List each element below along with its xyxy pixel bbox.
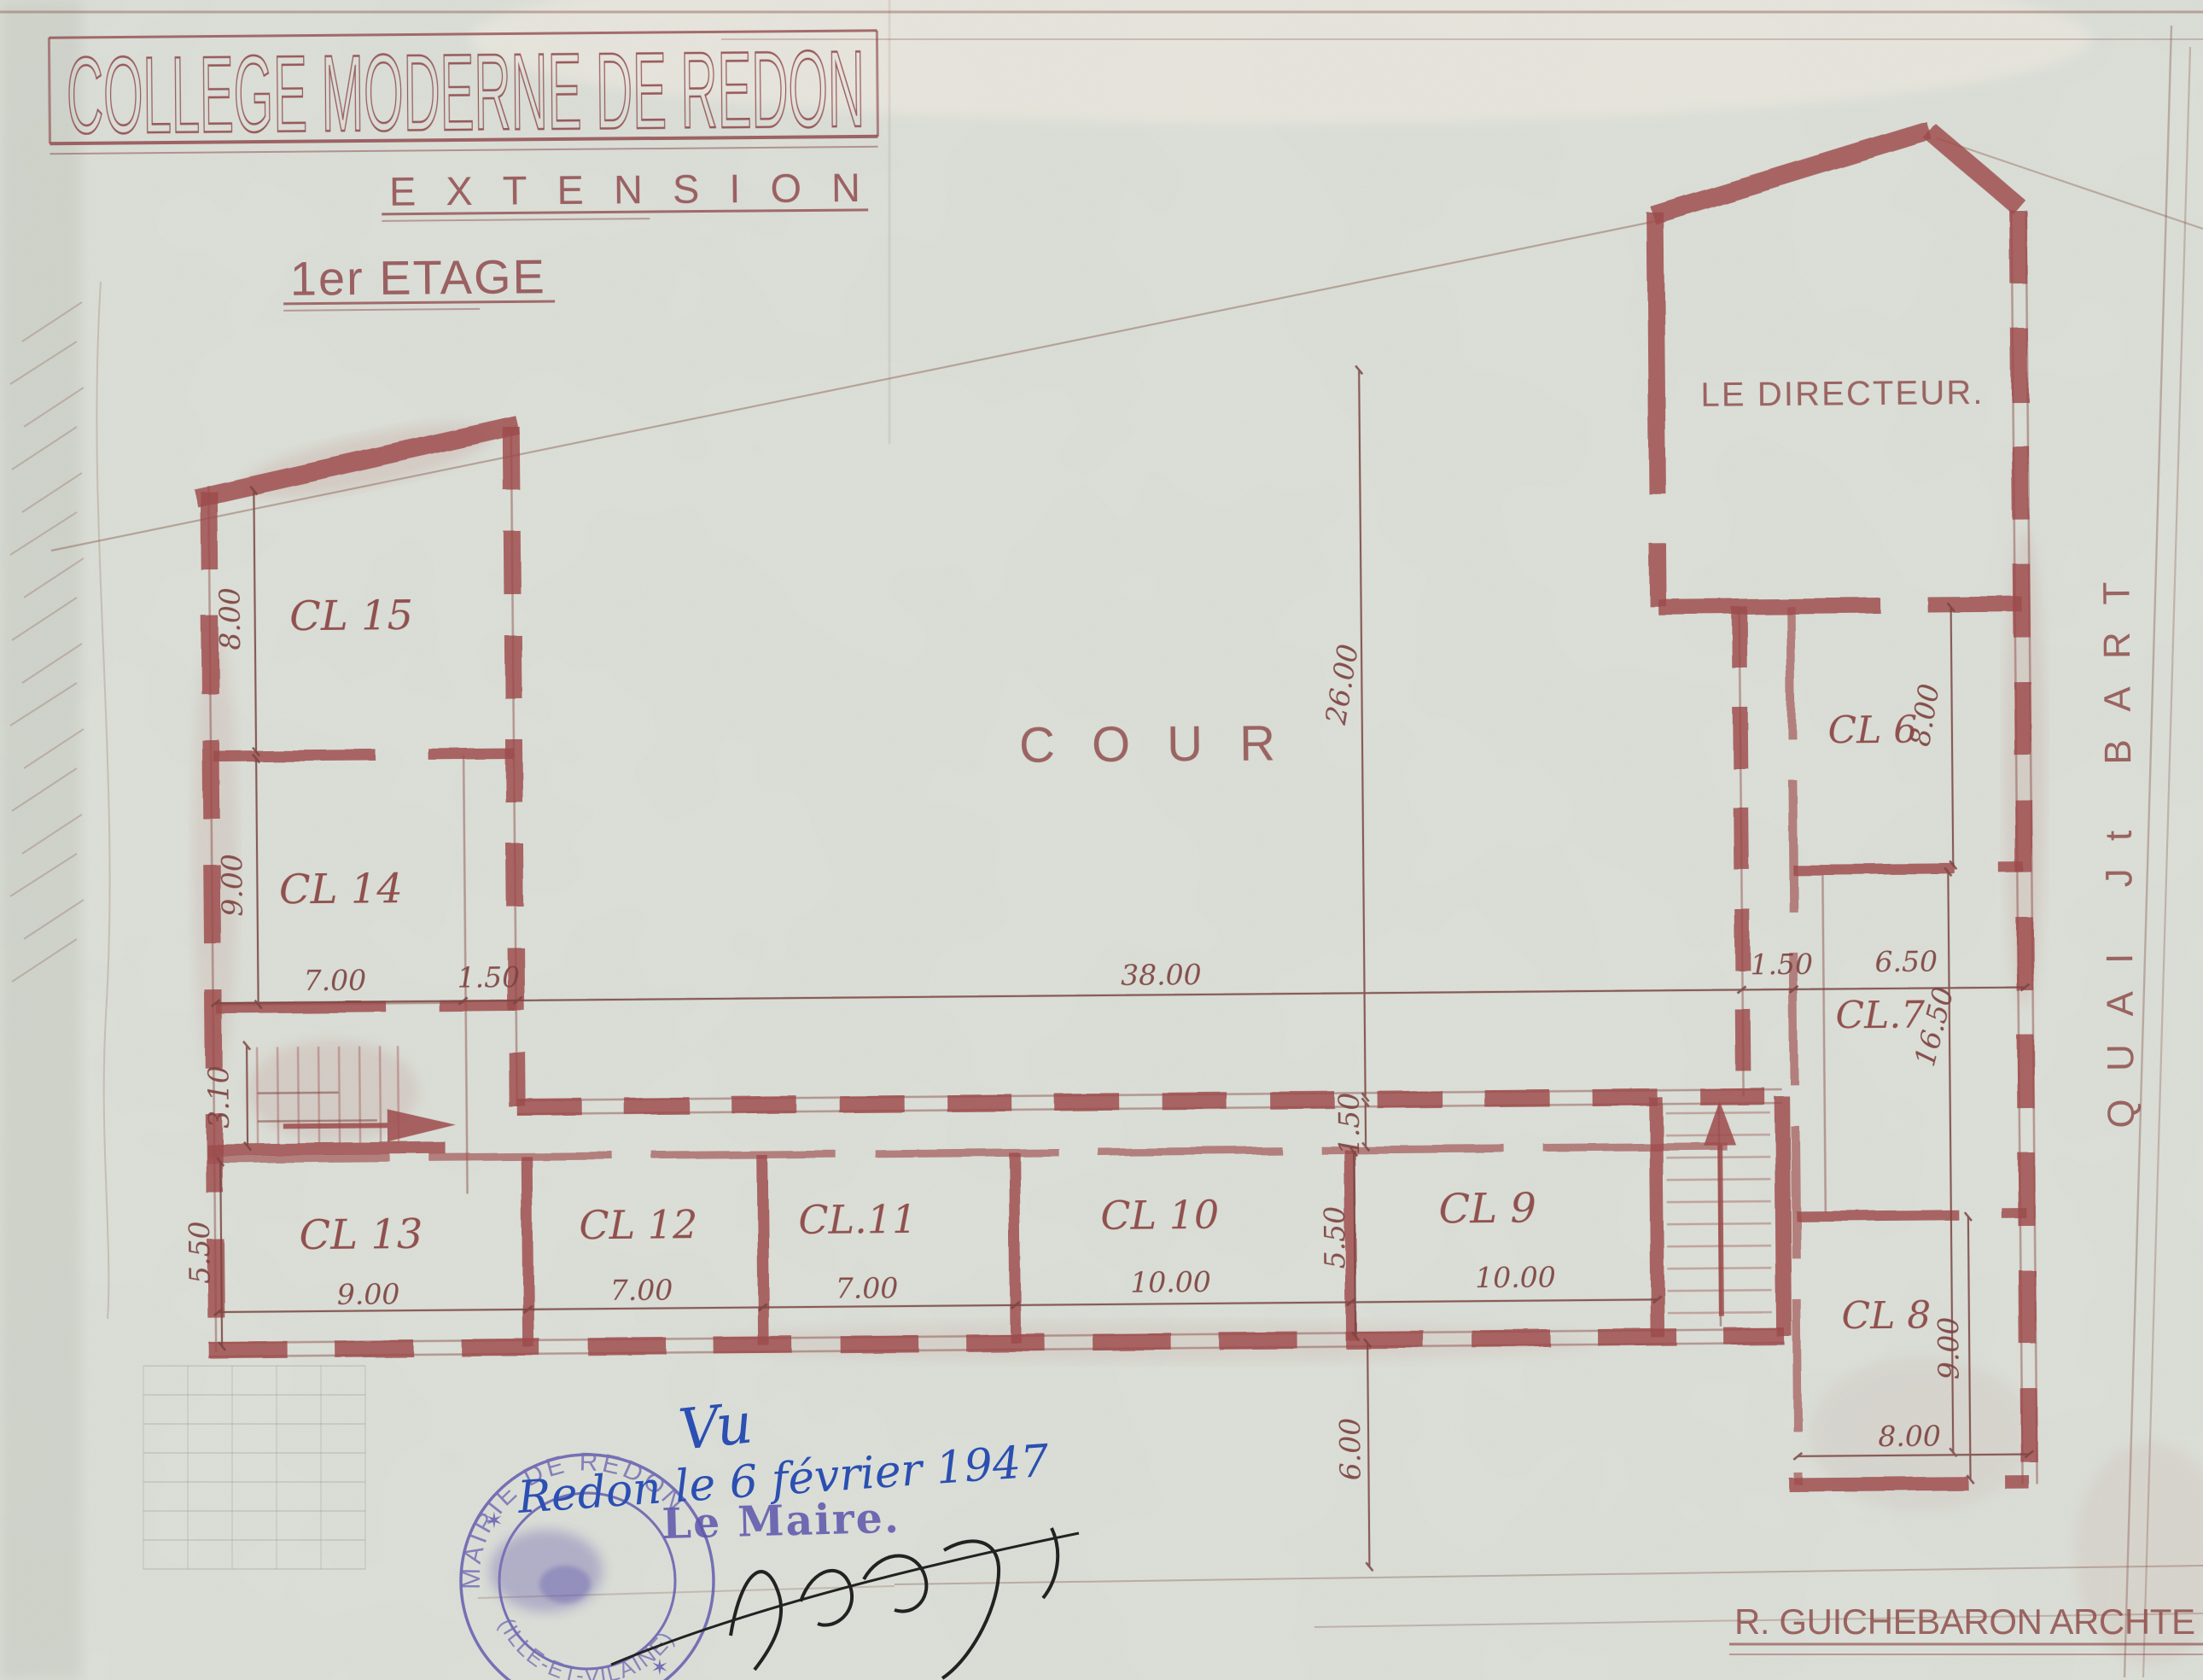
dim-cl13-depth: 5.50 [183,1221,217,1284]
sheet-title: COLLEGE MODERNE DE REDON [66,29,865,158]
dim-cl10-width: 10.00 [1130,1265,1211,1299]
dim-stairhall-width: 3.10 [201,1065,236,1129]
room-label-cl14: CL 14 [279,865,403,913]
room-label-cl15: CL 15 [289,592,413,640]
mayor-stamp-text: Le Maire. [661,1493,901,1549]
scanned-plan-sheet: COLLEGE MODERNE DE REDON EXTENSION 1er E… [0,0,2203,1680]
sheet-subtitle: EXTENSION [389,165,860,214]
wall-east-facade [2019,211,2030,1485]
dim-corridor-width: 1.50 [1332,1093,1367,1156]
dim-right-corridor-width: 1.50 [1750,948,1813,982]
dim-south-offset: 6.00 [1333,1418,1367,1481]
dim-cl13-width: 9.00 [337,1277,400,1311]
room-label-directeur: LE DIRECTEUR. [1700,374,1982,414]
dim-cl8-width: 8.00 [1878,1419,1941,1453]
dimline-right-corridor [1742,989,1794,990]
room-label-cl7: CL.7 [1835,994,1925,1038]
dim-cl14-width: 7.00 [303,964,366,998]
dim-wall-gap: 1.50 [457,960,520,995]
room-label-cl13: CL 13 [299,1210,423,1259]
room-label-cl11: CL.11 [798,1196,917,1243]
dim-cour-length: 38.00 [1121,958,1202,992]
wall-cl13-cl12 [527,1157,528,1347]
stamp-star-icon: ✶ [650,1655,669,1680]
wall-cl9-stairwell [1656,1097,1658,1337]
dim-cl8-depth: 9.00 [1932,1316,1966,1380]
wall-stairwell-east [1782,1096,1784,1336]
dim-cl15-depth: 8.00 [213,587,247,650]
wall-stairhall-cl13 [207,1147,484,1150]
wall-cl15-cl14 [213,754,514,756]
dim-cl11-width: 7.00 [836,1271,899,1305]
wall-directeur-south [1658,604,2022,608]
dim-cl12-width: 7.00 [610,1273,673,1307]
stair-arrow-shaft [283,1125,388,1126]
room-label-cl8: CL 8 [1841,1294,1931,1339]
approval-note-vu: Vu [676,1390,756,1463]
paper-left-edge-shade [0,0,81,1680]
dim-cl14-depth: 9.00 [215,854,249,917]
redon-college-floor-plan: COLLEGE MODERNE DE REDON EXTENSION 1er E… [0,0,2203,1680]
stamp-star-icon: ✶ [485,1508,504,1533]
wall-cl11-cl10 [1014,1152,1016,1343]
dimline-wall-gap [463,1000,518,1001]
room-label-cl6: CL 6 [1827,709,1917,753]
room-label-cl9: CL 9 [1438,1185,1536,1234]
dim-cl9-depth: 5.50 [1318,1206,1352,1269]
stamp-center-emblem [490,1530,603,1612]
room-label-cl10: CL 10 [1100,1192,1219,1239]
stamp-center-emblem-core [539,1566,591,1603]
floor-label: 1er ETAGE [290,249,545,306]
dim-cl7-width: 6.50 [1874,944,1938,978]
dim-cl9-width: 10.00 [1475,1260,1556,1294]
room-label-cl12: CL 12 [579,1201,697,1248]
dimline-stairhall [247,1046,248,1146]
wall-cl12-cl11 [761,1154,763,1345]
architect-name: R. GUICHEBARON ARCHTE [1734,1601,2195,1642]
wall-cl14-stairhall [216,1006,516,1008]
wall-directeur-west [1655,212,1658,606]
stair-arrow-shaft [1720,1146,1722,1316]
